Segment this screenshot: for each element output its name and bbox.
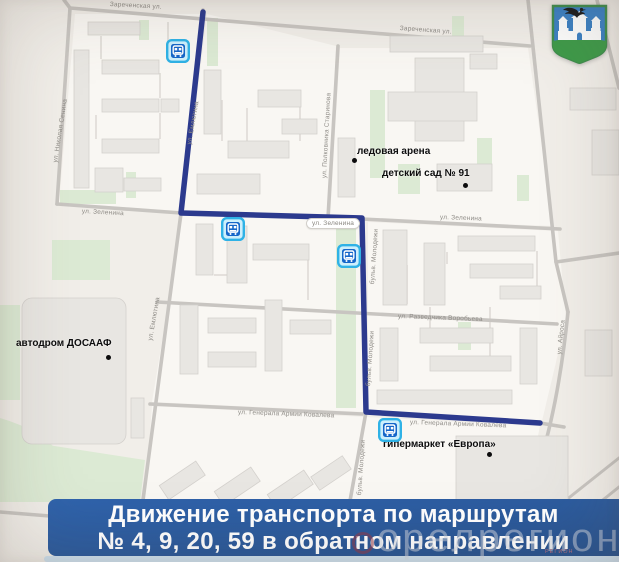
announcement-banner: Движение транспорта по маршрутам № 4, 9,…: [48, 499, 619, 556]
oryol-coat-of-arms-icon: [551, 4, 608, 64]
city-map: [0, 0, 619, 562]
route-change-infographic: Зареченская ул.Зареченская ул.ул. Никола…: [0, 0, 619, 562]
banner-bottom-strip: [44, 556, 619, 562]
banner-line-2: № 4, 9, 20, 59 в обратном направлении: [97, 528, 569, 555]
banner-line-1: Движение транспорта по маршрутам: [108, 501, 559, 528]
